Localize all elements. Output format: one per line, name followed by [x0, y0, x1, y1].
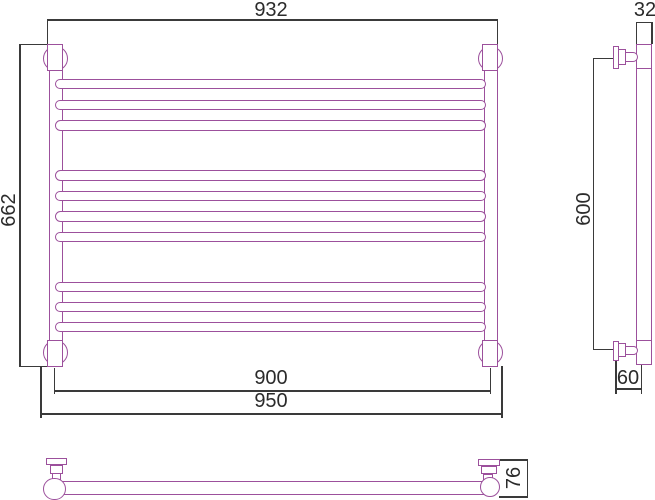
bottom-right-bracket-circle: [480, 477, 500, 497]
dim-total-width-label: 932: [241, 0, 301, 20]
left-post-outer-line: [49, 70, 50, 341]
dim-wall-offset-label: 60: [608, 368, 648, 388]
dim-tube-width-ext-left: [636, 22, 638, 45]
dim-total-height-ext-top: [19, 44, 48, 46]
front-rung-4: [55, 170, 486, 181]
dim-total-width-ext-left: [47, 19, 49, 44]
drawing-canvas: 932 662 900 950: [0, 0, 655, 500]
front-rung-10: [55, 322, 486, 333]
bottom-left-bracket-circle: [43, 478, 66, 500]
side-top-bracket-stem: [625, 52, 638, 62]
left-post-inner-line: [62, 70, 63, 341]
front-rung-2: [55, 100, 486, 111]
dim-bracket-depth-label: 76: [504, 458, 524, 498]
side-bottom-bracket-stem: [625, 346, 638, 355]
front-rung-6: [55, 211, 486, 222]
dim-outer-width-line: [40, 413, 503, 415]
dim-total-height-label: 662: [0, 185, 19, 235]
dim-tube-width-ext-right: [651, 22, 653, 45]
front-rung-7: [55, 232, 486, 243]
front-rung-9: [55, 302, 486, 313]
dim-bracket-span-label: 600: [574, 184, 594, 234]
right-post-inner-line: [484, 70, 485, 341]
front-rung-3: [55, 120, 486, 131]
dim-tube-width-label: 32: [625, 0, 655, 20]
dim-outer-width-ext-left: [40, 367, 42, 418]
dim-total-height-ext-bottom: [19, 366, 48, 368]
bottom-bar: [54, 481, 491, 494]
dim-mount-width-label: 900: [241, 368, 301, 388]
front-rung-1: [55, 79, 486, 90]
front-rung-8: [55, 282, 486, 293]
dim-bracket-span-ext-bottom: [593, 349, 615, 351]
front-rung-5: [55, 191, 486, 202]
right-post-outer-line: [497, 70, 498, 341]
dim-total-width-ext-right: [497, 19, 499, 44]
fitting-body-bottom-right: [482, 340, 498, 367]
dim-outer-width-label: 950: [241, 391, 301, 411]
dim-mount-width-ext-left: [54, 368, 56, 394]
dim-outer-width-ext-right: [501, 366, 503, 418]
fitting-body-bottom-left: [47, 340, 63, 367]
dim-bracket-depth-line: [527, 459, 529, 497]
side-bar-top-collector-line: [637, 68, 651, 69]
fitting-body-top-right: [482, 44, 498, 71]
side-bar: [636, 44, 653, 365]
dim-bracket-span-ext-top: [593, 58, 614, 60]
side-bar-bottom-collector-line: [637, 340, 651, 341]
dim-mount-width-ext-right: [490, 368, 492, 394]
fitting-body-top-left: [47, 44, 63, 71]
bottom-right-bracket-nut: [481, 466, 497, 475]
bottom-left-bracket-nut: [50, 465, 63, 474]
